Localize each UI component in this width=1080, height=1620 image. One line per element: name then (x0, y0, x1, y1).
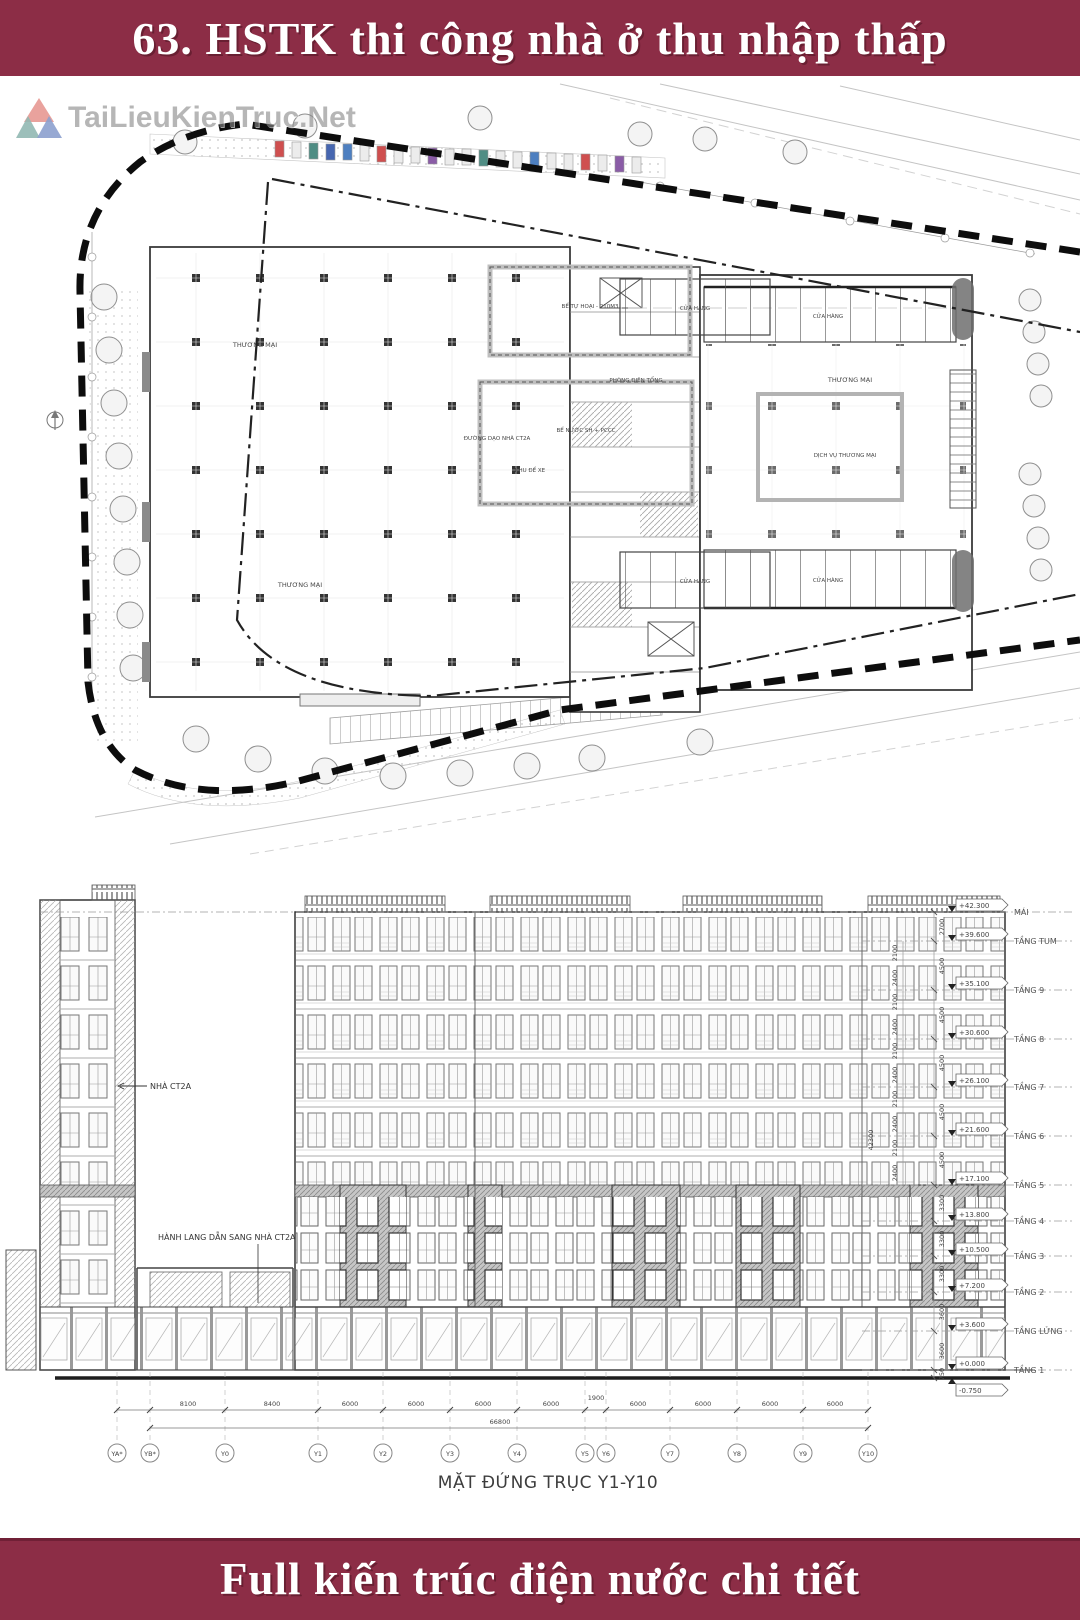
site-plan-drawing: THƯƠNG MẠI THƯƠNG MẠI THƯƠNG MẠI KHU ĐỂ … (0, 82, 1080, 857)
svg-text:2400: 2400 (891, 1019, 899, 1036)
svg-text:TẦNG 9: TẦNG 9 (1013, 983, 1044, 995)
svg-text:+7.200: +7.200 (959, 1282, 985, 1290)
corridor-label: HÀNH LANG DẪN SANG NHÀ CT2A (158, 1230, 296, 1242)
room-label: ĐƯỜNG DẠO NHÀ CT2A (464, 435, 531, 442)
svg-text:6000: 6000 (762, 1400, 779, 1408)
svg-text:+30.600: +30.600 (959, 1029, 989, 1037)
svg-text:6000: 6000 (630, 1400, 647, 1408)
svg-text:6000: 6000 (342, 1400, 359, 1408)
elevation-drawing: NHÀ CT2A HÀNH LANG DẪN SANG NHÀ CT2A 270… (0, 860, 1080, 1520)
svg-text:6000: 6000 (408, 1400, 425, 1408)
room-label: KHU ĐỂ XE (515, 466, 546, 474)
tower-ct2a (6, 885, 135, 1370)
svg-text:Y10: Y10 (861, 1450, 874, 1458)
level-marker: +0.000 TẦNG 1 (948, 1357, 1044, 1375)
svg-text:3300: 3300 (938, 1195, 946, 1212)
room-label: CỬA HÀNG (813, 312, 843, 320)
svg-text:2700: 2700 (938, 919, 946, 936)
svg-text:66800: 66800 (490, 1418, 511, 1426)
room-label: CỬA HÀNG (680, 304, 710, 312)
svg-text:TẦNG TUM: TẦNG TUM (1013, 934, 1057, 946)
svg-text:YA*: YA* (110, 1450, 123, 1458)
svg-text:TẦNG 2: TẦNG 2 (1013, 1285, 1044, 1297)
svg-text:Y8: Y8 (732, 1450, 741, 1458)
storefront (295, 1307, 1005, 1370)
room-label: THƯƠNG MẠI (277, 581, 322, 589)
ground-lines (40, 1370, 1035, 1378)
svg-text:4500: 4500 (938, 1152, 946, 1169)
svg-text:Y5: Y5 (580, 1450, 589, 1458)
building-plan (142, 247, 976, 712)
svg-text:MÁI: MÁI (1014, 906, 1029, 917)
svg-text:+42.300: +42.300 (959, 902, 989, 910)
svg-text:2100: 2100 (891, 1091, 899, 1108)
svg-text:2400: 2400 (891, 970, 899, 987)
svg-text:Y0: Y0 (220, 1450, 229, 1458)
svg-text:+35.100: +35.100 (959, 980, 989, 988)
svg-text:3600: 3600 (938, 1343, 946, 1360)
svg-text:+26.100: +26.100 (959, 1077, 989, 1085)
svg-text:8400: 8400 (264, 1400, 281, 1408)
svg-text:-0.750: -0.750 (959, 1387, 982, 1395)
svg-text:4500: 4500 (938, 958, 946, 975)
elevation-caption: MẶT ĐỨNG TRỤC Y1-Y10 (438, 1471, 658, 1493)
room-label: DỊCH VỤ THƯƠNG MẠI (814, 453, 877, 459)
footer-banner: Full kiến trúc điện nước chi tiết (0, 1538, 1080, 1620)
svg-text:+13.800: +13.800 (959, 1211, 989, 1219)
svg-text:2100: 2100 (891, 945, 899, 962)
svg-text:TẦNG LỬNG: TẦNG LỬNG (1013, 1324, 1063, 1336)
svg-text:YB*: YB* (143, 1450, 156, 1458)
svg-text:4500: 4500 (938, 1007, 946, 1024)
svg-text:Y6: Y6 (601, 1450, 610, 1458)
svg-text:Y3: Y3 (445, 1450, 454, 1458)
svg-text:6000: 6000 (695, 1400, 712, 1408)
svg-text:TẦNG 7: TẦNG 7 (1013, 1080, 1044, 1092)
page-title: 63. HSTK thi công nhà ở thu nhập thấp (132, 12, 947, 65)
svg-text:2100: 2100 (891, 1043, 899, 1060)
svg-text:42300: 42300 (867, 1130, 875, 1151)
north-arrow-icon (47, 410, 63, 430)
footer-title: Full kiến trúc điện nước chi tiết (220, 1553, 860, 1605)
header-banner: 63. HSTK thi công nhà ở thu nhập thấp (0, 0, 1080, 76)
svg-text:TẦNG 8: TẦNG 8 (1013, 1032, 1044, 1044)
room-label: PHÒNG ĐIỆN TỔNG (609, 376, 662, 384)
tower-label: NHÀ CT2A (150, 1080, 192, 1091)
svg-text:2400: 2400 (891, 1165, 899, 1182)
svg-text:TẦNG 5: TẦNG 5 (1013, 1178, 1044, 1190)
room-label: BỂ NƯỚC SH + PCCC (556, 426, 615, 434)
svg-text:+3.600: +3.600 (959, 1321, 985, 1329)
axis-dimensions: 8100 8400 6000 6000 6000 6000 1900 6000 … (114, 1394, 871, 1431)
svg-text:+39.600: +39.600 (959, 931, 989, 939)
svg-text:+21.600: +21.600 (959, 1126, 989, 1134)
svg-text:8100: 8100 (180, 1400, 197, 1408)
room-label: CỬA HÀNG (680, 577, 710, 585)
svg-text:Y7: Y7 (665, 1450, 674, 1458)
svg-text:3600: 3600 (938, 1304, 946, 1321)
svg-text:3300: 3300 (938, 1266, 946, 1283)
axis-bubbles: YA* YB* Y0 Y1 Y2 Y3 Y4 Y5 Y6 Y7 Y8 Y9 Y1… (108, 1444, 877, 1462)
svg-text:+10.500: +10.500 (959, 1246, 989, 1254)
svg-text:Y1: Y1 (313, 1450, 322, 1458)
svg-text:+17.100: +17.100 (959, 1175, 989, 1183)
elevation-annotations: NHÀ CT2A HÀNH LANG DẪN SANG NHÀ CT2A (118, 1080, 296, 1303)
svg-text:1900: 1900 (588, 1394, 605, 1402)
room-label: THƯƠNG MẠI (232, 341, 277, 349)
svg-text:TẦNG 4: TẦNG 4 (1013, 1214, 1044, 1226)
level-marker: -0.750 (948, 1378, 1008, 1396)
svg-text:2400: 2400 (891, 1116, 899, 1133)
svg-text:2400: 2400 (891, 1067, 899, 1084)
svg-text:TẦNG 3: TẦNG 3 (1013, 1249, 1044, 1261)
room-label: THƯƠNG MẠI (827, 376, 872, 384)
svg-text:4500: 4500 (938, 1104, 946, 1121)
svg-text:6000: 6000 (475, 1400, 492, 1408)
svg-text:750: 750 (938, 1368, 946, 1380)
svg-text:2100: 2100 (891, 994, 899, 1011)
svg-text:2100: 2100 (891, 1140, 899, 1157)
room-label: BỂ TỰ HOẠI - 210M3 (562, 302, 619, 310)
svg-text:+0.000: +0.000 (959, 1360, 985, 1368)
svg-text:TẦNG 6: TẦNG 6 (1013, 1129, 1044, 1141)
svg-text:Y4: Y4 (512, 1450, 521, 1458)
room-label: CỬA HÀNG (813, 576, 843, 584)
svg-text:6000: 6000 (543, 1400, 560, 1408)
podium (295, 1185, 1005, 1307)
svg-text:Y2: Y2 (378, 1450, 387, 1458)
svg-text:TẦNG 1: TẦNG 1 (1013, 1363, 1044, 1375)
axis-witness-lines (117, 1372, 868, 1443)
corridor-link (137, 1268, 293, 1370)
svg-text:4500: 4500 (938, 1055, 946, 1072)
svg-text:Y9: Y9 (798, 1450, 807, 1458)
svg-text:6000: 6000 (827, 1400, 844, 1408)
svg-text:3300: 3300 (938, 1231, 946, 1248)
